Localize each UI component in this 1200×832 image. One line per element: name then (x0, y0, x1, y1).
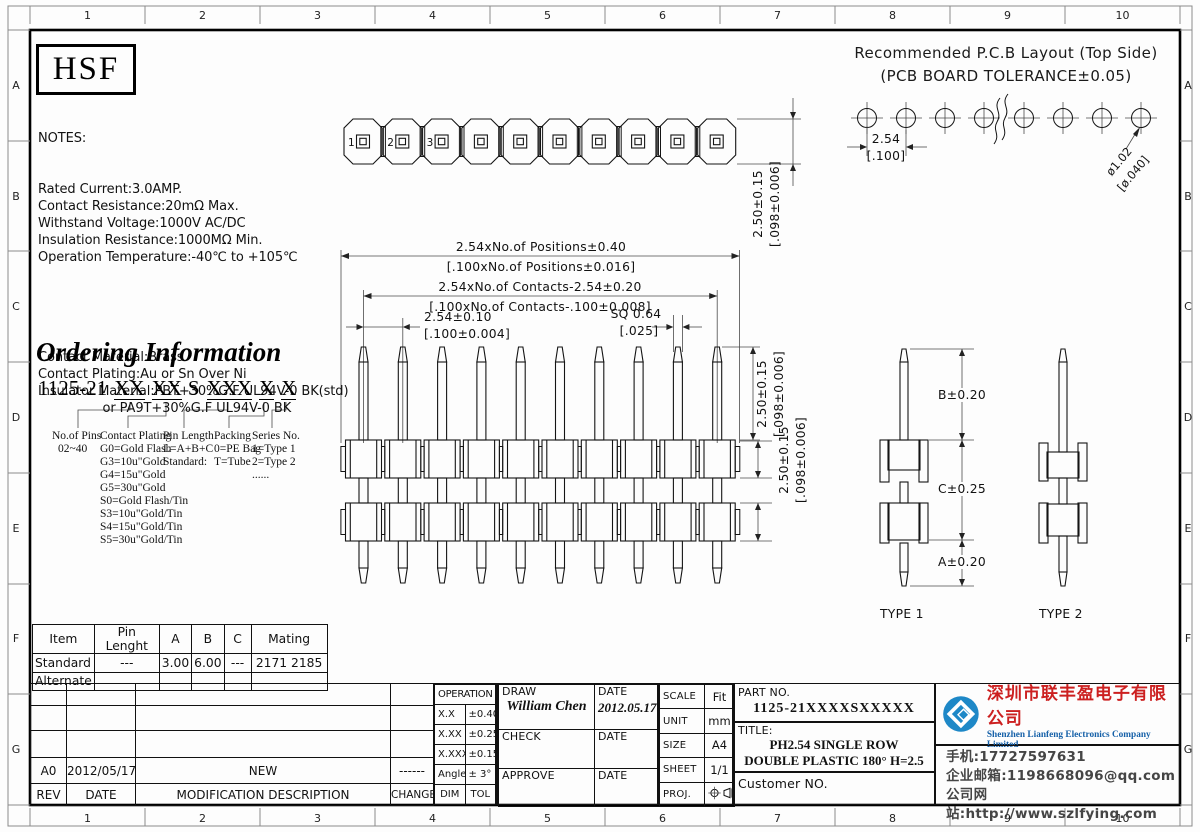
dim-contacts: 2.54xNo.of Contacts-2.54±0.20 [.100xNo.o… (364, 280, 718, 443)
ordering-heading: Ordering Information (36, 337, 281, 368)
scale-block: SCALEFit UNITmm SIZEA4 SHEET1/1 PROJ. (658, 683, 733, 805)
tolerance-block: OPERATION X.X±0.40 X.XX±0.25 X.XXX±0.15 … (433, 683, 497, 805)
side-view-type2: TYPE 2 (1038, 349, 1087, 621)
top-view: 1 2 3 (344, 119, 736, 164)
svg-text:2.54xNo.of Positions±0.40: 2.54xNo.of Positions±0.40 (456, 240, 626, 254)
sheet-value: 1/1 (705, 758, 735, 782)
side-view-type1: TYPE 1 (879, 349, 928, 621)
code-prefix: 1125-21 (38, 376, 107, 400)
pcb-pitch-dim: 2.54 [.100] (847, 126, 927, 163)
note-line: Rated Current:3.0AMP. (38, 181, 348, 198)
approve-date-label: DATE (598, 769, 656, 782)
ordering-code: 1125-21XXXXSXXXXX (38, 376, 296, 401)
code-packing: X (259, 377, 274, 400)
svg-text:A±0.20: A±0.20 (938, 555, 986, 569)
svg-text:[.098±0.006]: [.098±0.006] (772, 351, 786, 437)
projection-symbol-icon (708, 786, 735, 800)
code-pins: XX (114, 377, 144, 400)
note-line: Contact Resistance:20mΩ Max. (38, 198, 348, 215)
pcb-title-line2: (PCB BOARD TOLERANCE±0.05) (880, 67, 1131, 85)
dim-topview-height: 2.50±0.15 [.098±0.006] (737, 98, 801, 247)
svg-text:[.100±0.004]: [.100±0.004] (424, 327, 510, 341)
notes-heading: NOTES: (38, 130, 348, 147)
pcb-title-line1: Recommended P.C.B Layout (Top Side) (854, 44, 1157, 62)
company-phone: 手机:17727597631 (946, 748, 1179, 767)
check-date-label: DATE (598, 730, 656, 743)
pin-number-1: 1 (348, 137, 355, 149)
type2-label: TYPE 2 (1038, 607, 1083, 621)
signoff-block: DRAWWilliam Chen DATE2012.05.17 CHECK DA… (497, 683, 658, 805)
code-series-letter: S (188, 376, 200, 400)
dim-type1-chain: B±0.20 C±0.25 A±0.20 (910, 349, 990, 586)
unit-label: UNIT (660, 709, 705, 733)
note-line: or PA9T+30%G.F UL94V-0 BK (38, 400, 348, 417)
dim-positions: 2.54xNo.of Positions±0.40 [.100xNo.of Po… (341, 240, 740, 443)
drawing-title-line1: PH2.54 SINGLE ROW (734, 737, 934, 753)
drawing-title-line2: DOUBLE PLASTIC 180° H=2.5 (734, 753, 934, 769)
svg-text:B±0.20: B±0.20 (938, 388, 986, 402)
operation-header: OPERATION (435, 685, 496, 705)
svg-text:[.025]: [.025] (620, 324, 659, 338)
spec-table: Item Pin Lenght A B C Mating Standard --… (32, 624, 328, 691)
sheet-label: SHEET (660, 758, 705, 782)
revision-table: A0 2012/05/17 NEW ------ REV DATE MODIFI… (30, 683, 434, 806)
note-line: Withstand Voltage:1000V AC/DC (38, 215, 348, 232)
ordering-col-length: Pin Length L=A+B+C Standard: (163, 430, 214, 469)
customer-no-label: Customer NO. (734, 773, 934, 791)
spec-row-standard: Standard --- 3.00 6.00 --- 2171 2185 (33, 654, 328, 673)
check-label: CHECK (502, 730, 591, 743)
approve-label: APPROVE (502, 769, 591, 782)
ordering-col-pins: No.of Pins 02~40 (52, 430, 101, 456)
code-length: XXX (207, 377, 253, 400)
spec-header-row: Item Pin Lenght A B C Mating (33, 625, 328, 654)
svg-text:[.100]: [.100] (867, 149, 906, 163)
svg-text:[.098±0.006]: [.098±0.006] (768, 161, 782, 247)
company-logo-icon (941, 691, 981, 737)
note-line: Operation Temperature:-40℃ to +105℃ (38, 249, 348, 266)
draw-label: DRAW (502, 685, 591, 698)
type1-label: TYPE 1 (879, 607, 924, 621)
drafter-signature: William Chen (502, 699, 591, 715)
size-label: SIZE (660, 733, 705, 757)
hsf-logo: HSF (36, 44, 136, 95)
part-no-label: PART NO. (734, 684, 934, 699)
code-seriesno: X (281, 377, 296, 400)
svg-text:SQ 0.64: SQ 0.64 (611, 307, 662, 321)
notes-electrical: Rated Current:3.0AMP.Contact Resistance:… (38, 181, 348, 266)
note-line: Insulation Resistance:1000MΩ Min. (38, 232, 348, 249)
draw-date-label: DATE (598, 685, 656, 698)
company-name-cn: 深圳市联丰盈电子有限公司 (987, 679, 1174, 729)
engineering-drawing-sheet: { "sheet": { "numbers": ["1","2","3","4"… (0, 0, 1200, 832)
code-plating: XX (152, 377, 182, 400)
svg-text:2.54: 2.54 (872, 132, 901, 146)
svg-text:[.098±0.006]: [.098±0.006] (794, 417, 808, 503)
part-no-value: 1125-21XXXXSXXXXX (734, 701, 934, 717)
company-email: 企业邮箱:1198668096@qq.com (946, 767, 1179, 786)
unit-value: mm (705, 709, 735, 733)
size-value: A4 (705, 733, 735, 757)
pin-number-2: 2 (387, 137, 394, 149)
draw-date: 2012.05.17 (598, 700, 656, 716)
dim-pin-exposed: 2.50±0.15 [.098±0.006] (722, 347, 786, 440)
scale-value: Fit (705, 685, 735, 709)
front-view (341, 347, 740, 583)
ordering-col-series: Series No. 1=Type 1 2=Type 2 ...... (252, 430, 300, 482)
proj-label: PROJ. (660, 782, 705, 806)
svg-text:2.50±0.15: 2.50±0.15 (755, 360, 769, 428)
company-website: 公司网站:http://www.szlfying.com (946, 786, 1179, 824)
svg-text:2.50±0.15: 2.50±0.15 (777, 426, 791, 494)
svg-text:2.54xNo.of Contacts-2.54±0.20: 2.54xNo.of Contacts-2.54±0.20 (438, 280, 641, 294)
scale-label: SCALE (660, 685, 705, 709)
revision-entry-row: A0 2012/05/17 NEW ------ (31, 758, 434, 784)
revision-header-row: REV DATE MODIFICATION DESCRIPTION CHANGE (31, 784, 434, 806)
svg-text:2.54±0.10: 2.54±0.10 (424, 310, 492, 324)
svg-text:[.100xNo.of Positions±0.016]: [.100xNo.of Positions±0.016] (447, 260, 636, 274)
svg-text:C±0.25: C±0.25 (938, 482, 986, 496)
dim-square-pin: SQ 0.64 [.025] (611, 307, 702, 352)
pin-number-3: 3 (427, 137, 434, 149)
title-label: TITLE: (734, 723, 934, 737)
svg-text:2.50±0.15: 2.50±0.15 (751, 170, 765, 238)
pcb-hole-dim: ø1.02 [ø.040] (1103, 127, 1152, 194)
pcb-layout: Recommended P.C.B Layout (Top Side) (PCB… (847, 44, 1158, 194)
